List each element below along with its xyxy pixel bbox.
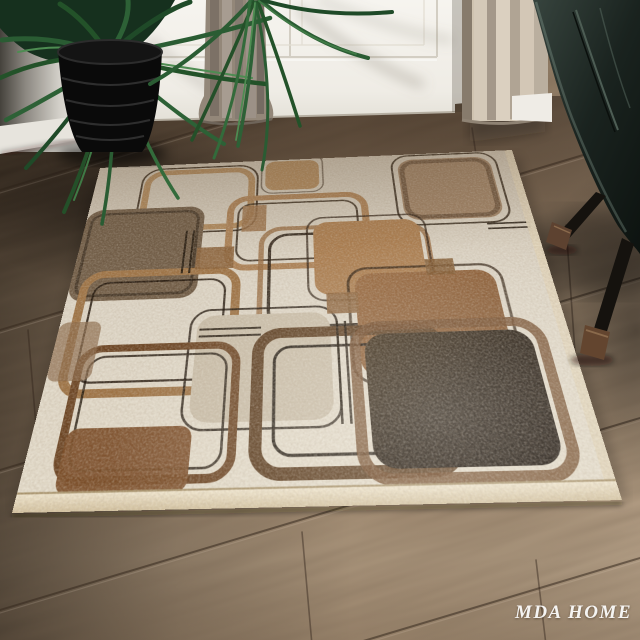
baseboard-right — [512, 93, 552, 122]
curtain-center — [199, 0, 274, 124]
product-photo: MDA HOME — [0, 0, 640, 640]
wall-left — [0, 0, 84, 154]
watermark-text: MDA HOME — [515, 602, 632, 624]
